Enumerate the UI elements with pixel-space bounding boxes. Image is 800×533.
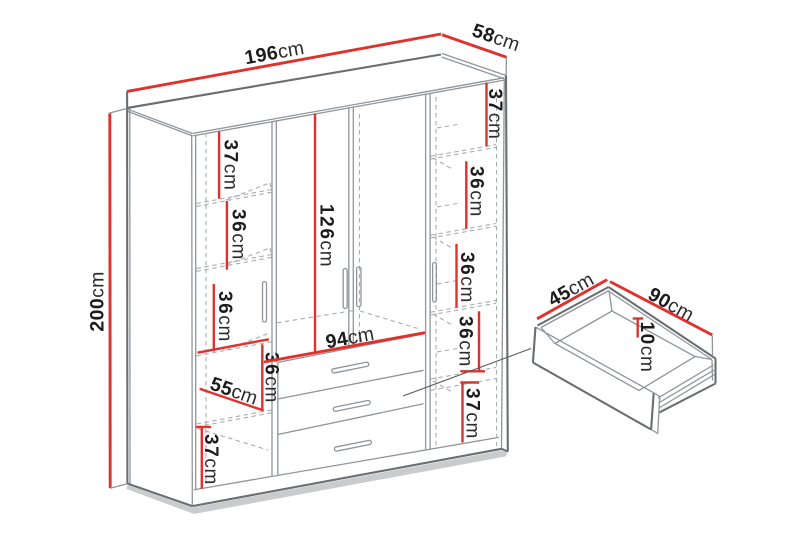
svg-text:37cm: 37cm bbox=[220, 140, 241, 191]
svg-text:36cm: 36cm bbox=[466, 166, 487, 217]
svg-text:200cm: 200cm bbox=[87, 271, 109, 331]
svg-text:36cm: 36cm bbox=[214, 291, 235, 342]
svg-text:36cm: 36cm bbox=[228, 209, 249, 260]
svg-text:10cm: 10cm bbox=[636, 322, 657, 373]
svg-text:37cm: 37cm bbox=[484, 89, 505, 140]
svg-text:36cm: 36cm bbox=[456, 252, 477, 303]
svg-text:36cm: 36cm bbox=[455, 316, 476, 367]
svg-text:37cm: 37cm bbox=[462, 388, 483, 439]
svg-text:37cm: 37cm bbox=[200, 434, 221, 485]
svg-text:126cm: 126cm bbox=[316, 204, 337, 267]
